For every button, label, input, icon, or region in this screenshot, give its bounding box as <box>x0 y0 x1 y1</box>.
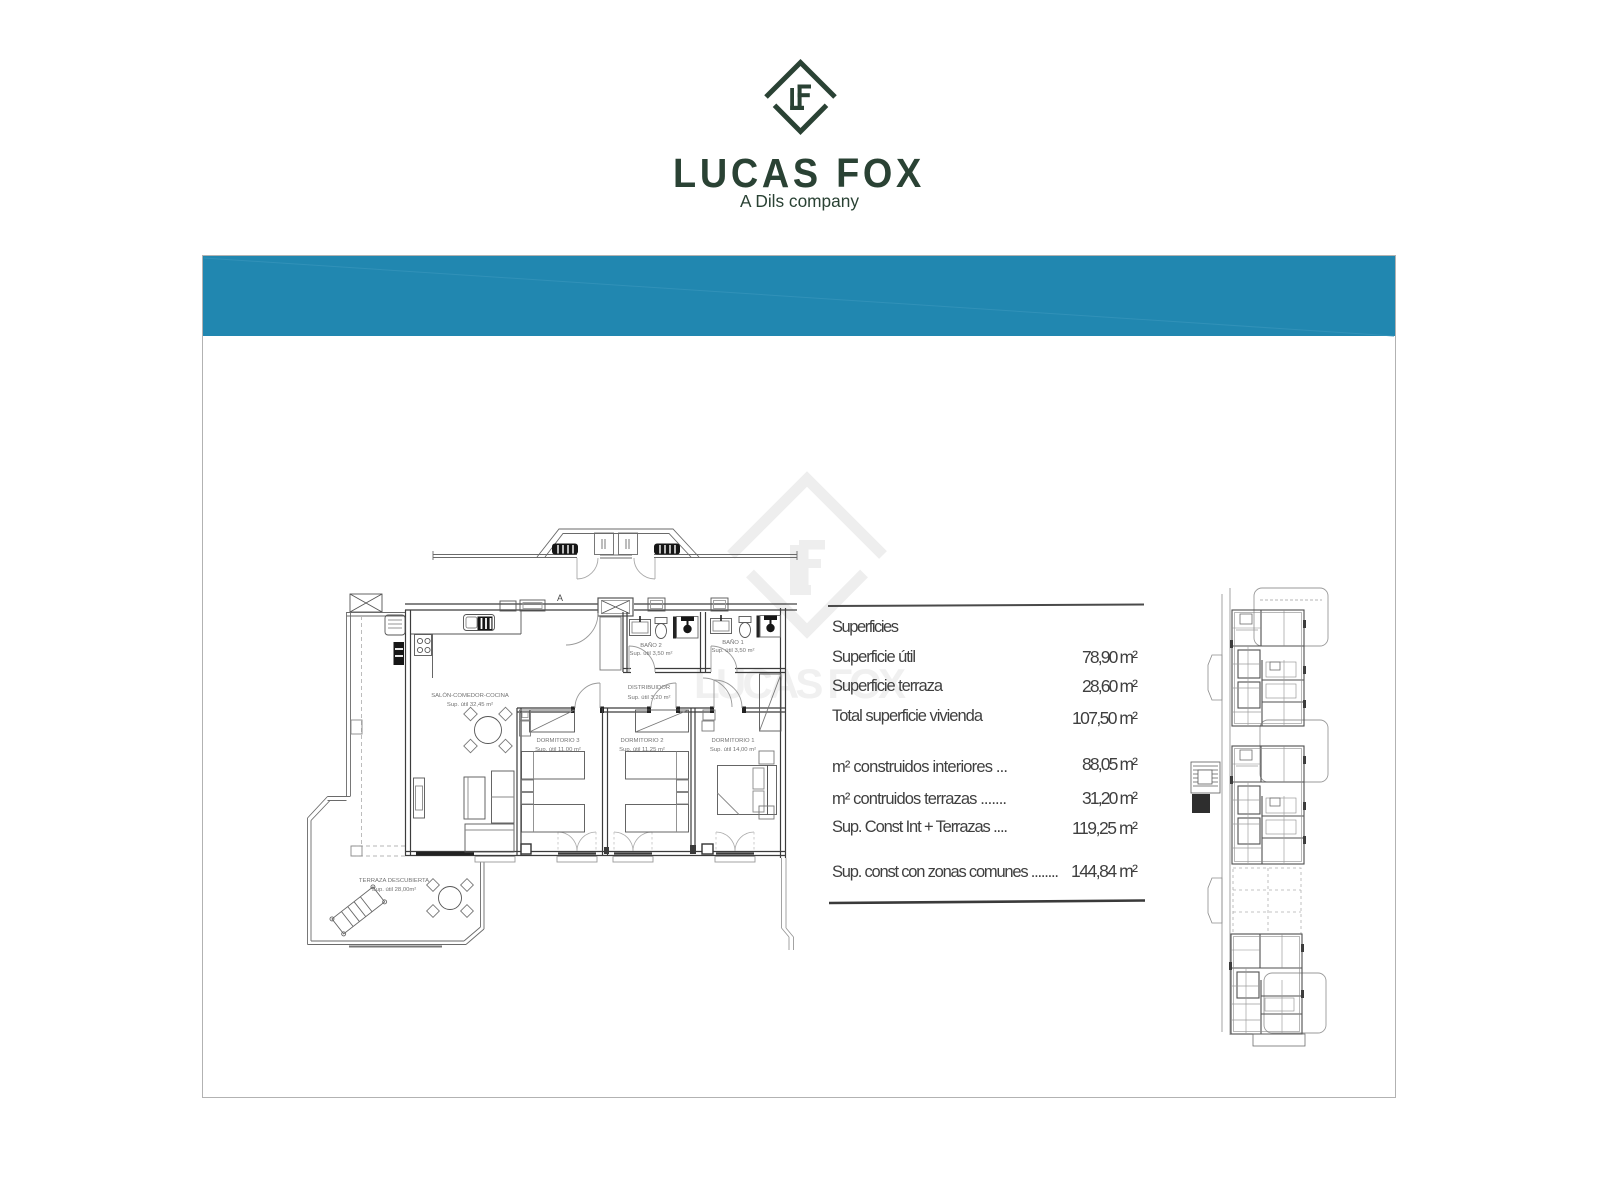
svg-text:TERRAZA DESCUBIERTA: TERRAZA DESCUBIERTA <box>359 878 429 884</box>
svg-text:LUCAS FOX: LUCAS FOX <box>673 150 925 196</box>
svg-text:Sup. útil 11,25 m²: Sup. útil 11,25 m² <box>619 747 665 753</box>
svg-text:SALÓN-COMEDOR-COCINA: SALÓN-COMEDOR-COCINA <box>431 692 509 699</box>
svg-text:Superficie terraza: Superficie terraza <box>832 677 944 695</box>
svg-text:BAÑO 2: BAÑO 2 <box>640 642 662 649</box>
svg-text:DORMITORIO 2: DORMITORIO 2 <box>620 738 663 744</box>
svg-text:Sup. const con zonas comunes .: Sup. const con zonas comunes ........ <box>832 863 1059 881</box>
svg-text:m² construidos interiores ...: m² construidos interiores ... <box>832 758 1008 776</box>
svg-text:Superficie útil: Superficie útil <box>832 648 916 666</box>
svg-text:Sup. útil 3,50 m²: Sup. útil 3,50 m² <box>712 648 755 654</box>
svg-text:Sup. útil 11,00 m²: Sup. útil 11,00 m² <box>535 747 581 753</box>
svg-text:78,90 m²: 78,90 m² <box>1082 647 1138 667</box>
svg-text:Sup. útil 3,50 m²: Sup. útil 3,50 m² <box>630 651 673 657</box>
svg-text:m² contruidos terrazas .......: m² contruidos terrazas ....... <box>832 790 1007 808</box>
svg-text:Total superficie vivienda: Total superficie vivienda <box>832 707 984 725</box>
svg-text:31,20 m²: 31,20 m² <box>1082 788 1138 808</box>
svg-text:144,84 m²: 144,84 m² <box>1071 861 1138 881</box>
svg-text:DORMITORIO 1: DORMITORIO 1 <box>711 738 754 744</box>
svg-text:Sup. útil 14,00 m²: Sup. útil 14,00 m² <box>710 747 756 753</box>
svg-text:A Dils company: A Dils company <box>740 191 859 211</box>
svg-text:Sup. útil 28,00m²: Sup. útil 28,00m² <box>372 887 417 893</box>
svg-text:119,25 m²: 119,25 m² <box>1072 818 1138 838</box>
svg-text:28,60 m²: 28,60 m² <box>1082 676 1138 696</box>
svg-text:107,50 m²: 107,50 m² <box>1072 708 1138 728</box>
svg-text:88,05 m²: 88,05 m² <box>1082 754 1138 774</box>
svg-text:BAÑO 1: BAÑO 1 <box>722 639 744 646</box>
svg-text:Sup. Const Int + Terrazas ....: Sup. Const Int + Terrazas .... <box>832 818 1008 836</box>
svg-text:Sup. útil 32,45 m²: Sup. útil 32,45 m² <box>447 702 493 708</box>
svg-text:Superficies: Superficies <box>832 618 899 636</box>
svg-text:Sup. útil 3,20 m²: Sup. útil 3,20 m² <box>628 695 671 701</box>
svg-text:A: A <box>557 593 563 603</box>
svg-text:DISTRIBUIDOR: DISTRIBUIDOR <box>628 685 670 691</box>
svg-text:DORMITORIO 3: DORMITORIO 3 <box>536 738 580 744</box>
